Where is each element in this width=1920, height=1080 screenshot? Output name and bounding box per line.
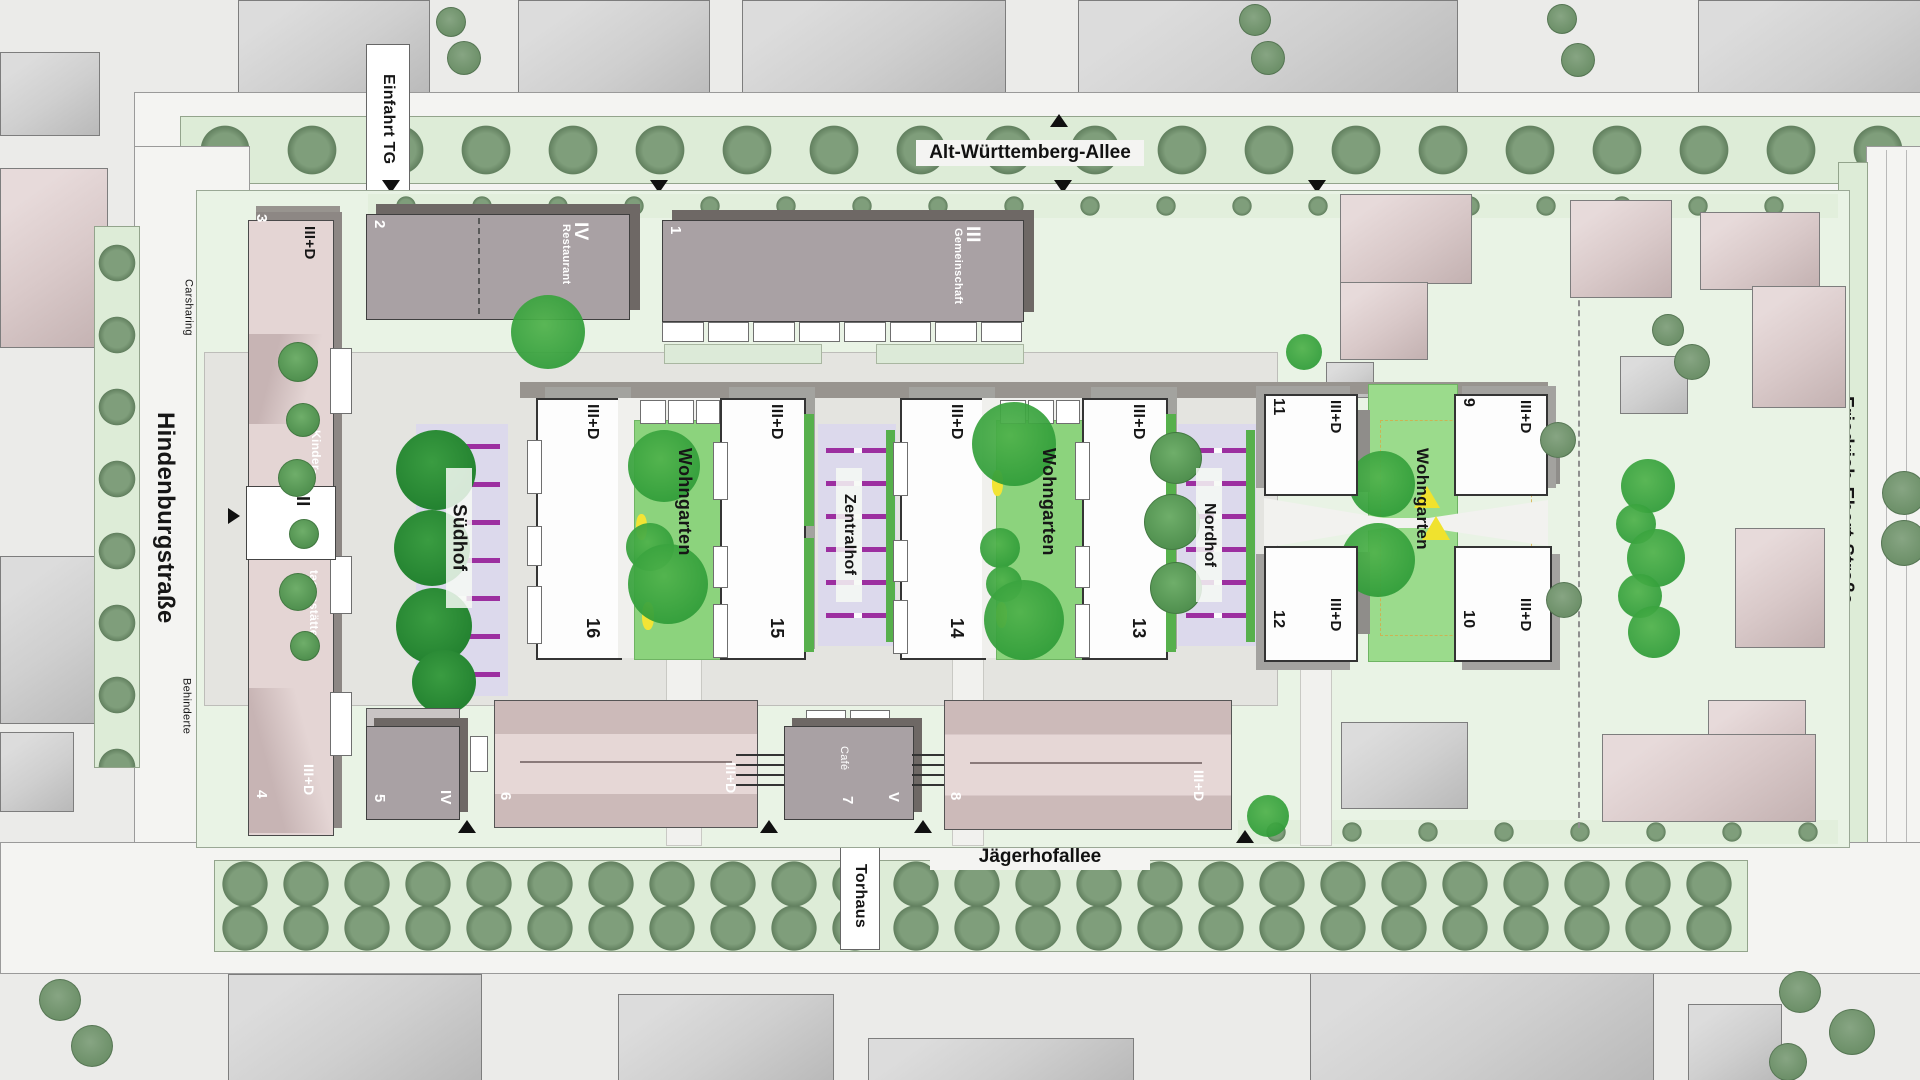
tree [1882,471,1920,515]
terrace [640,400,666,424]
tree [1674,344,1710,380]
terrace [844,322,886,342]
terrace [799,322,841,342]
window-recess [1075,546,1090,588]
carsharing-wrap: Carsharing [180,252,196,362]
context-building [1700,212,1820,290]
building-1-floors: III [963,226,982,316]
building-10-floors: III+D [1518,598,1533,632]
terrace [708,322,750,342]
tree [289,519,319,549]
tree [290,631,320,661]
zentralhof-label: Zentralhof [841,494,857,575]
tree [1769,1043,1807,1080]
building-14-number: 14 [948,618,966,639]
building-15-floors: III+D [768,404,784,440]
tree [1239,4,1271,36]
building-8 [944,700,1232,830]
tree [1547,4,1577,34]
building-7-floors: V [886,792,901,802]
nordhof-label-band: Nordhof [1196,468,1222,602]
tree [447,41,481,75]
building-5-floors: IV [438,790,453,805]
building-15-number: 15 [768,618,786,639]
window-recess [713,604,728,658]
tree [278,459,316,497]
tree [1561,43,1595,77]
building-7-number: 7 [840,796,855,805]
building-5 [366,726,460,820]
building-9-floors: III+D [1518,400,1533,434]
tree [1829,1009,1875,1055]
building-11-floors: III+D [1328,400,1343,434]
context-building [0,732,74,812]
building-9-number: 9 [1460,398,1476,407]
context-building [1735,528,1825,648]
lawn-strip [876,344,1024,364]
building-11-number: 11 [1270,398,1286,416]
context-building [1340,282,1428,360]
window-recess [527,586,542,644]
building-13-number: 13 [1130,618,1148,639]
hedge [804,414,814,526]
context-building [0,556,106,724]
connector [470,736,488,772]
building-12-floors: III+D [1328,598,1343,632]
suedhof-label: Südhof [450,504,469,571]
tree [1540,422,1576,458]
street-label-top: Alt-Württemberg-Allee [916,140,1144,166]
street-bottom-tree-strip [214,860,1748,952]
balcony [330,692,352,756]
balcony [330,348,352,414]
lawn-strip [664,344,822,364]
building-6-number: 6 [498,792,513,801]
tree [1150,562,1202,614]
context-building [1341,722,1468,809]
building-6 [494,700,758,828]
tree [1144,494,1200,550]
building-2-floors: IV [571,222,590,316]
context-building [1310,964,1654,1080]
building-4-floors: III+D [302,764,316,795]
window-recess [527,440,542,494]
context-building [618,994,834,1080]
site-plan-canvas: Alt-Württemberg-Allee Einfahrt TG Hinden… [0,0,1920,1080]
court-stripe [826,448,890,453]
window-recess [1075,442,1090,500]
building-1-use: Gemeinschaft [952,228,963,316]
building-2-divider [478,218,480,314]
kita-entrance-label: II [294,496,312,507]
building-16-floors: III+D [584,404,600,440]
tree [286,403,320,437]
building-7-torhaus [784,726,914,820]
kita-entrance [246,486,336,560]
hedge [1246,430,1255,642]
terrace [981,322,1023,342]
building-5-number: 5 [372,794,387,803]
balcony [330,556,352,614]
tree [39,979,81,1021]
tree [279,573,317,611]
tree [412,650,476,714]
wohngarten-west-label: Wohngarten [676,448,694,556]
tree [1628,606,1680,658]
tree [71,1025,113,1067]
boundary-line [1578,240,1580,828]
window-recess [713,442,728,500]
wohngarten-ost-label: Wohngarten [1414,448,1431,550]
building-13-floors: III+D [1130,404,1146,440]
terrace [890,322,932,342]
suedhof-label-band: Südhof [446,468,472,608]
context-building [868,1038,1134,1080]
building-1-number: 1 [668,226,683,235]
einfahrt-tg-label: Einfahrt TG [380,74,396,164]
torhaus-label: Torhaus [852,864,868,928]
tree [1779,971,1821,1013]
building-10-number: 10 [1460,610,1476,628]
building-14-floors: III+D [948,404,964,440]
tree [984,580,1064,660]
building-8-ridge [970,762,1202,764]
context-building [1340,194,1472,284]
hedge [804,538,814,652]
entrance-marker [760,820,778,833]
street-label-left-wrap: Hindenburgstraße [148,368,182,668]
tree [1881,520,1920,566]
building-10 [1454,546,1552,662]
context-building [1688,1004,1782,1080]
einfahrt-tg-ramp: Einfahrt TG [366,44,410,194]
building-3-floors: III+D [302,226,317,260]
zentralhof-label-band: Zentralhof [836,468,862,602]
window-recess [893,442,908,496]
wohngarten-mitte-label: Wohngarten [1040,448,1058,556]
building-7-use: Café [838,746,849,770]
nordhof-label: Nordhof [1201,503,1217,567]
tree [278,342,318,382]
window-recess [527,526,542,566]
building-12-number: 12 [1270,610,1286,628]
behinderte-wrap: Behinderte [178,656,194,756]
terrace [753,322,795,342]
building-16-number: 16 [584,618,602,639]
passage-lines [736,754,784,790]
street-label-left: Hindenburgstraße [153,412,177,623]
context-building [0,168,108,348]
tree [1286,334,1322,370]
context-building [228,974,482,1080]
building-1-terraces [662,322,1022,342]
tree [628,544,708,624]
tree [1652,314,1684,346]
building-4-number: 4 [254,790,269,799]
tree [436,7,466,37]
tree [1349,451,1415,517]
context-building [1602,734,1816,822]
building-15 [720,398,806,660]
terrace [696,400,720,424]
tree [1150,432,1202,484]
building-8-number: 8 [948,792,963,801]
window-recess [893,540,908,582]
context-building [742,0,1006,94]
context-building [0,52,100,136]
building-6-ridge [520,761,732,763]
terrace [935,322,977,342]
context-building [1570,200,1672,298]
slab-row-extrusion [520,382,1276,398]
footpath [1300,660,1332,846]
behinderte-label: Behinderte [181,678,192,734]
torhaus-wrap: Torhaus [840,842,880,950]
tree [980,528,1020,568]
context-building [1752,286,1846,408]
window-recess [713,546,728,588]
kita-entrance-arrow [228,508,240,524]
building-2-number: 2 [372,220,387,229]
building-3-number: 3 [254,214,269,223]
terrace [668,400,694,424]
entrance-marker [1050,114,1068,127]
building-8-floors: III+D [1192,770,1206,801]
building-16 [536,398,622,660]
street-left-tree-strip [94,226,140,768]
entrance-marker [1236,830,1254,843]
tree [511,295,585,369]
entrance-marker [914,820,932,833]
building-1-labels: III Gemeinschaft [952,226,982,316]
court-stripe [826,613,890,618]
terrace [1056,400,1080,424]
terrace [662,322,704,342]
window-recess [893,600,908,654]
tree [1251,41,1285,75]
carsharing-label: Carsharing [183,279,194,336]
court-stripe [1186,613,1250,618]
tree [1546,582,1582,618]
entrance-marker [458,820,476,833]
building-4-roof [249,688,331,833]
window-recess [1075,604,1090,658]
